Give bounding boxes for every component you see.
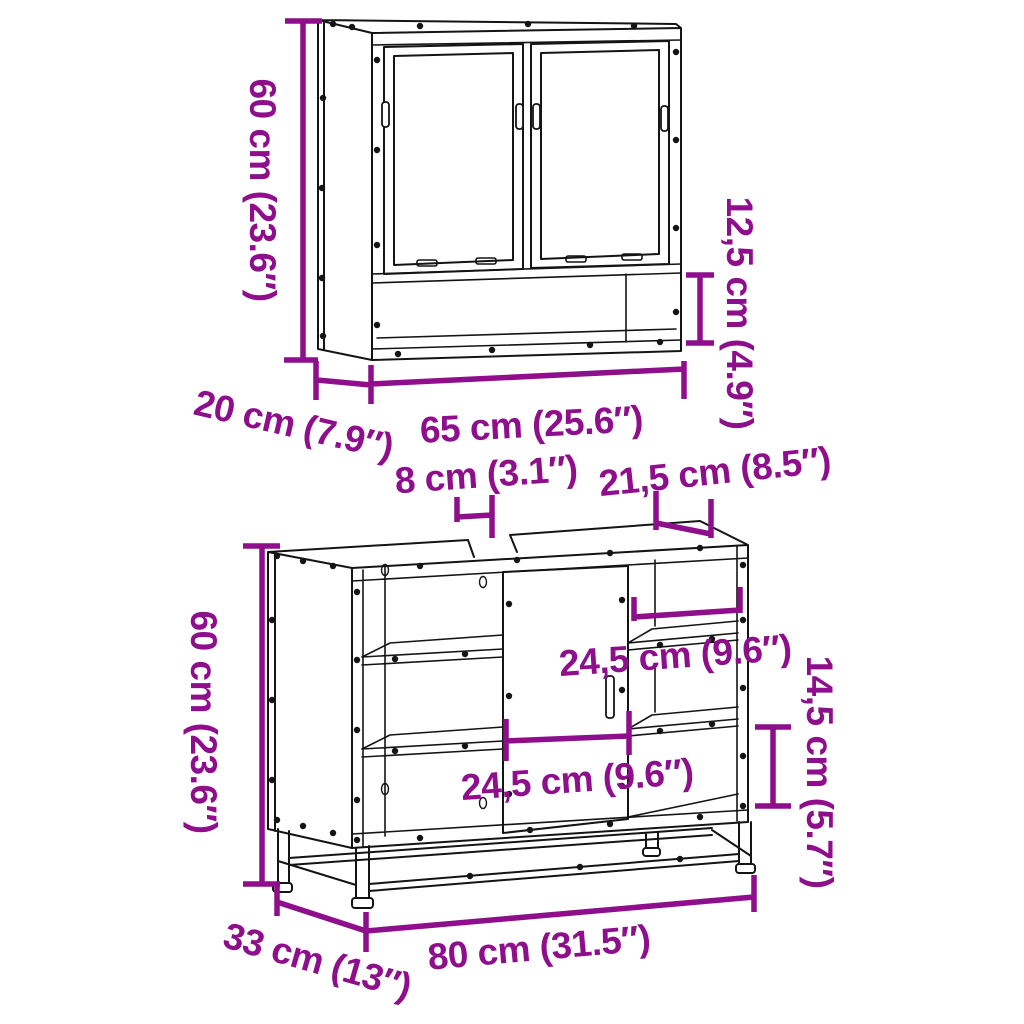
mirror-shelf-dimension-line <box>686 275 714 343</box>
vanity-door-width-label: 24,5 cm (9.6″) <box>460 751 695 808</box>
vanity-feet <box>273 848 755 908</box>
vanity-top-right-label: 21,5 cm (8.5″) <box>597 439 833 504</box>
mirror-cabinet-details <box>372 40 681 349</box>
dimension-annotations: 60 cm (23.6″) 20 cm (7.9″) 65 cm (25.6″)… <box>183 21 840 1007</box>
mirror-depth-dimension-line <box>316 361 371 400</box>
mirror-height-dimension-line <box>284 21 322 360</box>
diagram-canvas: 60 cm (23.6″) 20 cm (7.9″) 65 cm (25.6″)… <box>0 0 1024 1024</box>
mirror-cabinet-drawing <box>318 20 681 360</box>
mirror-shelf-height-label: 12,5 cm (4.9″) <box>719 197 760 430</box>
mirror-depth-label: 20 cm (7.9″) <box>190 382 397 468</box>
vanity-cabinet-drawing <box>268 521 755 908</box>
mirror-doors <box>384 41 669 274</box>
vanity-screw-dots <box>269 545 746 879</box>
vanity-top-right-dimension-line <box>656 491 711 538</box>
vanity-shelf-spacing-label: 14,5 cm (5.7″) <box>799 656 840 889</box>
vanity-cutout-dimension-line <box>457 495 492 538</box>
vanity-height-label: 60 cm (23.6″) <box>183 610 224 833</box>
vanity-width-label: 80 cm (31.5″) <box>426 917 652 977</box>
vanity-width-dimension-line <box>366 875 754 931</box>
mirror-door-handles <box>382 102 668 131</box>
vanity-right-compartment-label: 24,5 cm (9.6″) <box>558 627 793 684</box>
furniture-dimension-diagram: 60 cm (23.6″) 20 cm (7.9″) 65 cm (25.6″)… <box>0 0 1024 1024</box>
vanity-cutout-label: 8 cm (3.1″) <box>393 448 578 502</box>
mirror-width-label: 65 cm (25.6″) <box>419 398 644 451</box>
vanity-door-handle <box>606 676 614 718</box>
mirror-height-label: 60 cm (23.6″) <box>242 78 283 301</box>
vanity-right-compartment-dimension-line <box>634 587 740 621</box>
vanity-shelf-spacing-dimension-line <box>755 727 791 806</box>
